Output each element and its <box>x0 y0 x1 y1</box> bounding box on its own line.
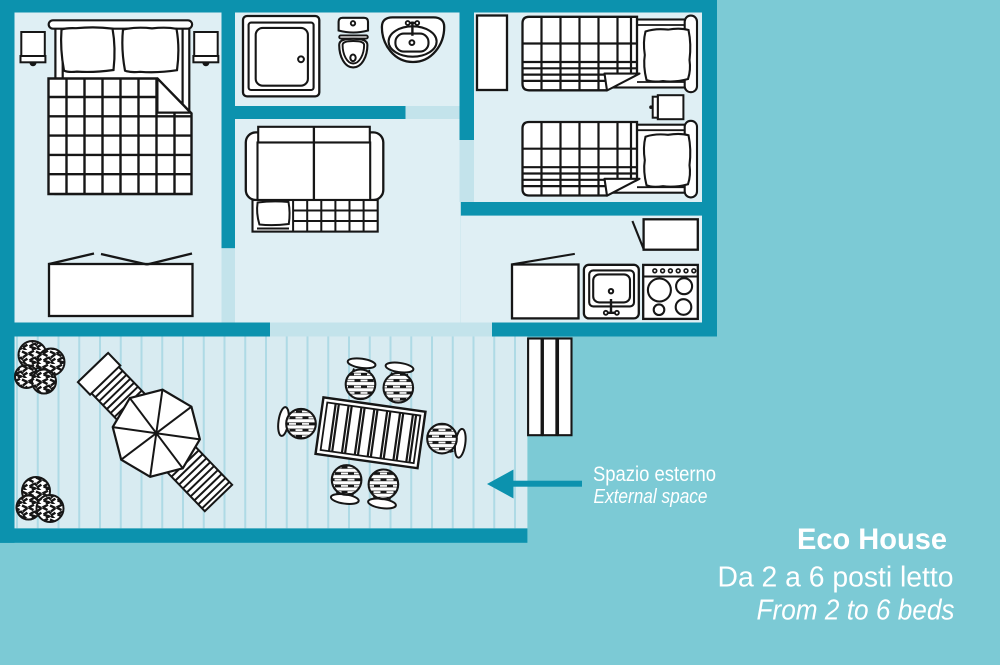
svg-text:Da 2 a 6 posti letto: Da 2 a 6 posti letto <box>718 562 954 594</box>
svg-text:From 2 to 6 beds: From 2 to 6 beds <box>757 595 955 627</box>
svg-text:Spazio esterno: Spazio esterno <box>593 462 716 486</box>
svg-text:External space: External space <box>594 485 708 508</box>
svg-text:Eco House: Eco House <box>797 523 947 556</box>
